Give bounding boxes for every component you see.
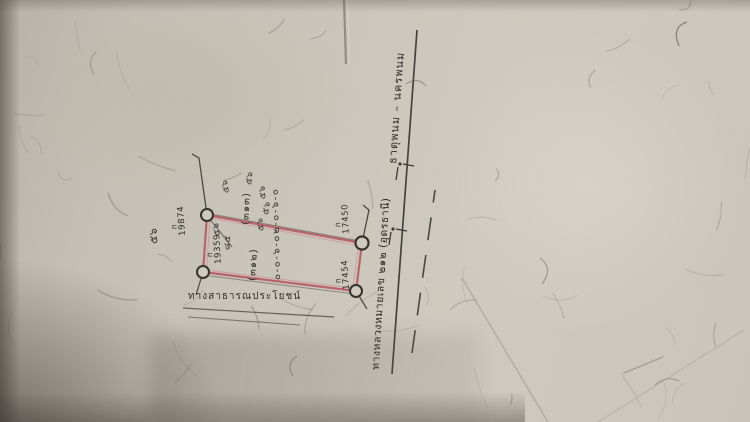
neighbor-scribble: ๕๖ <box>147 227 160 244</box>
lane-edge-line <box>183 308 334 317</box>
highway-dashed-line <box>412 190 435 353</box>
boundary-extension <box>192 154 207 215</box>
marker-label-17450: ก 17450 <box>333 204 352 235</box>
neighbor-scribble: ๕๖ <box>262 201 273 216</box>
marker-label-19874: ก 19874 <box>169 205 188 236</box>
sketch-page: ก 19874 ก 19359 ก 17450 ก 17454 ๐-๐-๖-๐๒… <box>0 0 750 422</box>
neighbor-scribble: ๕๖ <box>256 217 267 231</box>
lane-edge-line <box>188 317 300 325</box>
boundary-marker-circle <box>201 209 213 221</box>
neighbor-parcel-number: (๓๑๓) <box>241 192 253 225</box>
boundary-marker-circle <box>356 237 369 250</box>
neighbor-scribble: ๕๖ <box>258 185 269 199</box>
lane-label: ทางสาธารณประโยชน์ <box>188 292 301 303</box>
neighbor-scribble: ๘๕ <box>223 235 233 250</box>
station-tick <box>396 162 414 180</box>
station-tick <box>389 227 407 245</box>
survey-sketch-photo: ก 19874 ก 19359 ก 17450 ก 17454 ๐-๐-๖-๐๒… <box>0 0 750 422</box>
boundary-marker-circle <box>197 266 209 278</box>
marker-label-19359: ก 19359 <box>205 234 224 265</box>
parcel-number: (๓๑๒) <box>248 248 260 281</box>
neighbor-scribble: ๕๖ <box>212 222 223 237</box>
marker-label-17454: ก 17454 <box>333 259 352 290</box>
neighbor-scribble: ๕๖ <box>245 171 256 185</box>
